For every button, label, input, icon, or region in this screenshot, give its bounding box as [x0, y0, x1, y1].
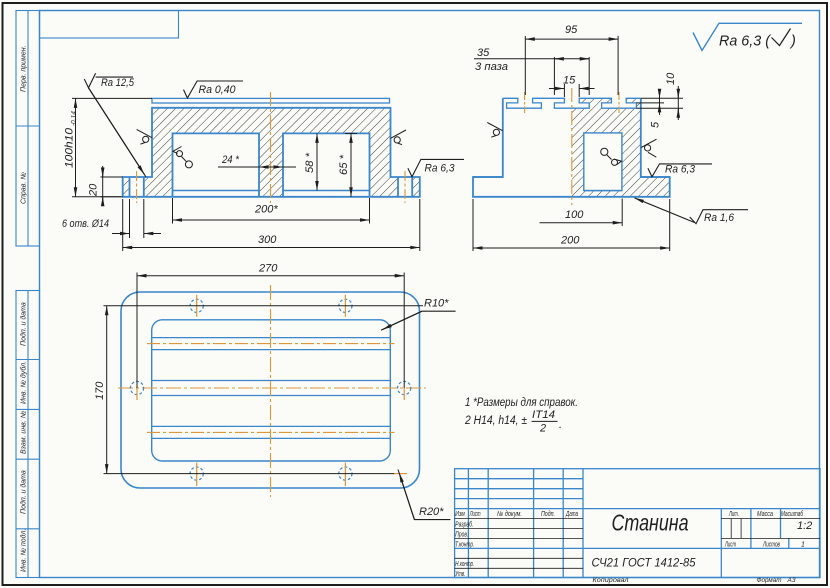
svg-text:Лист: Лист: [724, 542, 736, 549]
svg-text:15: 15: [563, 75, 576, 87]
svg-text:24 *: 24 *: [221, 154, 239, 166]
svg-text:95: 95: [565, 24, 578, 36]
svg-text:-0,14: -0,14: [71, 111, 78, 126]
svg-text:Станина: Станина: [612, 510, 689, 536]
svg-text:Ra 12,5: Ra 12,5: [101, 77, 135, 89]
svg-text:IT14: IT14: [532, 409, 555, 421]
svg-text:Копировал: Копировал: [593, 577, 629, 584]
svg-text:35: 35: [477, 47, 490, 59]
svg-text:СЧ21 ГОСТ 1412-85: СЧ21 ГОСТ 1412-85: [592, 558, 697, 570]
svg-text:Справ. №: Справ. №: [21, 172, 28, 204]
svg-text:3 паза: 3 паза: [475, 61, 508, 73]
svg-text:Масса: Масса: [757, 511, 773, 518]
svg-text:Ra 1,6: Ra 1,6: [704, 212, 735, 224]
svg-text:Пров.: Пров.: [455, 531, 468, 538]
svg-text:100h10: 100h10: [64, 127, 76, 168]
svg-text:Ra 6,3: Ra 6,3: [425, 163, 456, 175]
svg-text:Взам. инв. №: Взам. инв. №: [21, 410, 28, 454]
svg-text:№ докум.: № докум.: [497, 510, 522, 518]
svg-text:R10*: R10*: [424, 298, 449, 310]
svg-text:.: .: [559, 419, 562, 431]
svg-text:10: 10: [665, 72, 677, 85]
svg-text:Лит.: Лит.: [728, 511, 739, 518]
svg-text:300: 300: [258, 234, 277, 246]
svg-text:R20*: R20*: [419, 506, 444, 518]
svg-text:1:2: 1:2: [797, 520, 812, 532]
svg-text:Т.контр.: Т.контр.: [455, 541, 474, 548]
svg-text:6 отв. Ø14: 6 отв. Ø14: [62, 218, 109, 230]
svg-text:Изм: Изм: [455, 511, 465, 518]
svg-text:): ): [789, 34, 796, 50]
svg-text:Н.контр.: Н.контр.: [455, 561, 474, 568]
svg-text:58 *: 58 *: [304, 152, 316, 173]
svg-text:20: 20: [88, 183, 100, 197]
svg-text:Разраб.: Разраб.: [455, 520, 473, 528]
svg-text:170: 170: [94, 381, 106, 400]
svg-text:1 *Размеры для справок.: 1 *Размеры для справок.: [465, 397, 578, 409]
svg-text:200: 200: [560, 235, 580, 247]
svg-text:Дата: Дата: [565, 511, 578, 518]
svg-text:А3: А3: [787, 577, 796, 584]
svg-text:2 Н14, h14, ±: 2 Н14, h14, ±: [464, 415, 527, 427]
svg-text:Лист: Лист: [469, 511, 481, 518]
svg-text:Ra 0,40: Ra 0,40: [199, 84, 237, 96]
svg-text:5: 5: [650, 121, 662, 128]
svg-text:200*: 200*: [254, 204, 278, 216]
svg-text:Инв. № подл.: Инв. № подл.: [20, 529, 28, 572]
svg-text:Подп.: Подп.: [541, 510, 555, 518]
svg-text:65 *: 65 *: [338, 154, 350, 175]
svg-text:100: 100: [565, 209, 584, 221]
svg-text:Листов: Листов: [762, 542, 780, 549]
svg-text:Утв.: Утв.: [455, 571, 466, 578]
svg-text:Подп. и дата: Подп. и дата: [20, 302, 28, 346]
svg-text:270: 270: [258, 263, 278, 275]
svg-text:Масштаб: Масштаб: [781, 510, 804, 518]
svg-text:Подп. и дата: Подп. и дата: [20, 470, 28, 514]
svg-text:Формат: Формат: [757, 577, 783, 584]
svg-text:1: 1: [801, 542, 805, 549]
svg-text:Ra 6,3: Ra 6,3: [665, 164, 696, 176]
svg-text:Перв. примен.: Перв. примен.: [21, 45, 28, 92]
svg-text:2: 2: [539, 423, 546, 435]
svg-text:Ra 6,3 (: Ra 6,3 (: [719, 34, 772, 50]
svg-text:Инв. № дубл.: Инв. № дубл.: [20, 361, 28, 404]
